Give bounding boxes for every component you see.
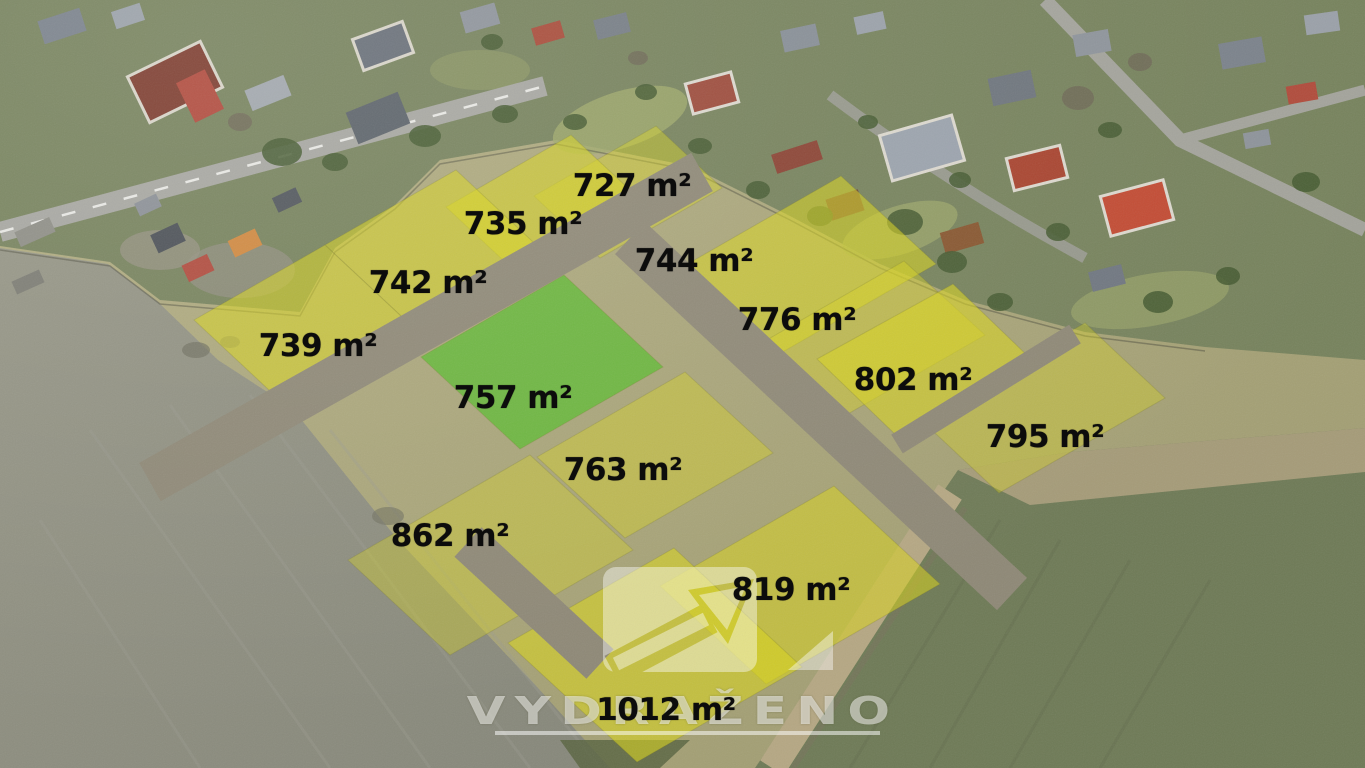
photo-grain-overlay bbox=[0, 0, 1365, 768]
aerial-photo-scene: VYDRAŽENO 727 m² 735 m² 742 m² 744 m² 73… bbox=[0, 0, 1365, 768]
scene-graphics bbox=[0, 0, 1365, 768]
